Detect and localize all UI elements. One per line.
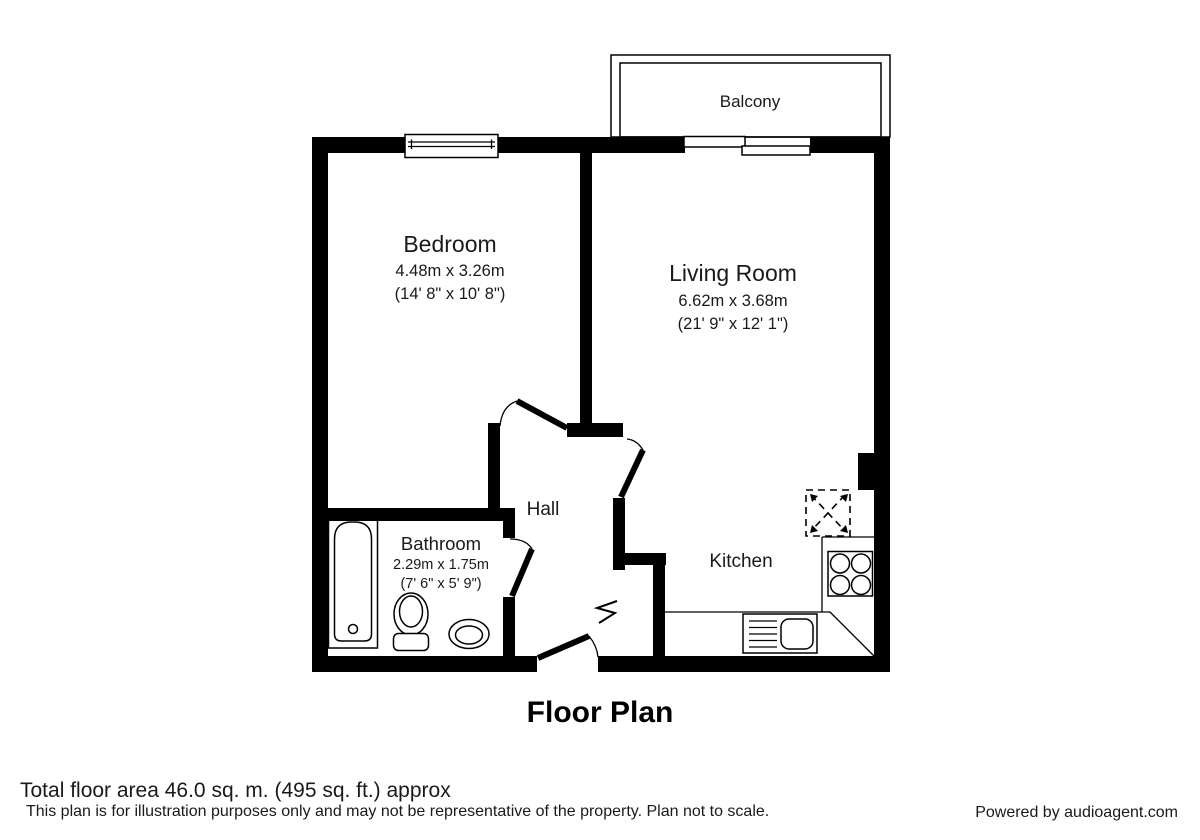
floor-plan-page: Balcony Bedroom 4.48m x 3.26m (14' 8" x … — [0, 0, 1200, 840]
wall-right-pillar — [858, 453, 890, 490]
appliance-arrowhead — [810, 525, 818, 533]
bedroom-window — [405, 135, 498, 158]
bedroom-label: Bedroom — [403, 231, 496, 257]
wall-hall-kitchen-jog — [619, 553, 666, 565]
disclaimer-text: This plan is for illustration purposes o… — [26, 803, 769, 820]
kitchen-label: Kitchen — [709, 551, 772, 572]
living-room-dims-imperial: (21' 9" x 12' 1") — [678, 315, 789, 333]
wall-hall-top — [567, 423, 623, 437]
wall-bottom-left — [312, 656, 537, 672]
appliance-space — [806, 490, 850, 536]
bathtub-drain — [349, 625, 358, 634]
bathtub-inner — [335, 522, 372, 641]
wall-bottom-right — [598, 656, 890, 672]
living-room-dims-metric: 6.62m x 3.68m — [678, 292, 787, 310]
hall-label: Hall — [527, 499, 560, 520]
wall-bathroom-right-lower — [503, 597, 515, 656]
appliance-arrowhead — [840, 525, 848, 533]
living-room-label: Living Room — [669, 260, 797, 286]
wall-bedroom-living-divider — [580, 153, 592, 423]
wall-top-middle — [498, 137, 685, 153]
appliance-arrowhead — [810, 494, 818, 502]
balcony-sliding-door — [684, 137, 810, 156]
living-room-door-leaf — [621, 450, 643, 497]
wall-bathroom-right-upper — [503, 521, 515, 538]
balcony-label: Balcony — [720, 92, 781, 111]
bathroom-dims-metric: 2.29m x 1.75m — [393, 557, 489, 573]
entrance-door-leaf — [538, 636, 589, 658]
bathroom-label: Bathroom — [401, 533, 481, 554]
bathtub-outer — [329, 517, 378, 649]
sliding-door-panel — [742, 146, 810, 155]
bedroom-door-swing-arc — [500, 401, 517, 426]
wall-right — [874, 137, 890, 672]
bedroom-door-leaf — [517, 401, 567, 428]
opening-break-mark — [597, 601, 617, 623]
bathroom-dims-imperial: (7' 6" x 5' 9") — [400, 576, 481, 592]
footer: Total floor area 46.0 sq. m. (495 sq. ft… — [20, 779, 1178, 821]
bedroom-dims-metric: 4.48m x 3.26m — [395, 262, 504, 280]
wall-left — [312, 137, 328, 672]
counter-corner-diagonal — [830, 612, 874, 656]
walls — [312, 137, 890, 672]
bathtub — [329, 517, 378, 649]
powered-by-credit: Powered by audioagent.com — [975, 804, 1178, 821]
living-room-door-swing-arc — [627, 439, 643, 450]
total-floor-area-text: Total floor area 46.0 sq. m. (495 sq. ft… — [20, 779, 451, 802]
entrance-door-swing-arc — [589, 636, 598, 657]
bedroom-dims-imperial: (14' 8" x 10' 8") — [395, 285, 506, 303]
wall-kitchen-left — [653, 565, 665, 656]
hob — [828, 552, 873, 597]
wall-bedroom-hall — [488, 423, 500, 513]
hob-plate — [828, 552, 873, 597]
bathroom-door-leaf — [512, 549, 532, 596]
kitchen-sink — [743, 614, 817, 653]
sliding-door-panel — [684, 137, 745, 148]
toilet — [394, 593, 429, 651]
page-title: Floor Plan — [527, 696, 674, 729]
bathroom-basin — [449, 620, 489, 649]
floor-plan-drawing: Balcony Bedroom 4.48m x 3.26m (14' 8" x … — [0, 0, 1200, 840]
bathroom-door-swing-arc — [510, 539, 532, 549]
wall-bathroom-top — [328, 508, 515, 521]
toilet-cistern — [394, 634, 429, 651]
